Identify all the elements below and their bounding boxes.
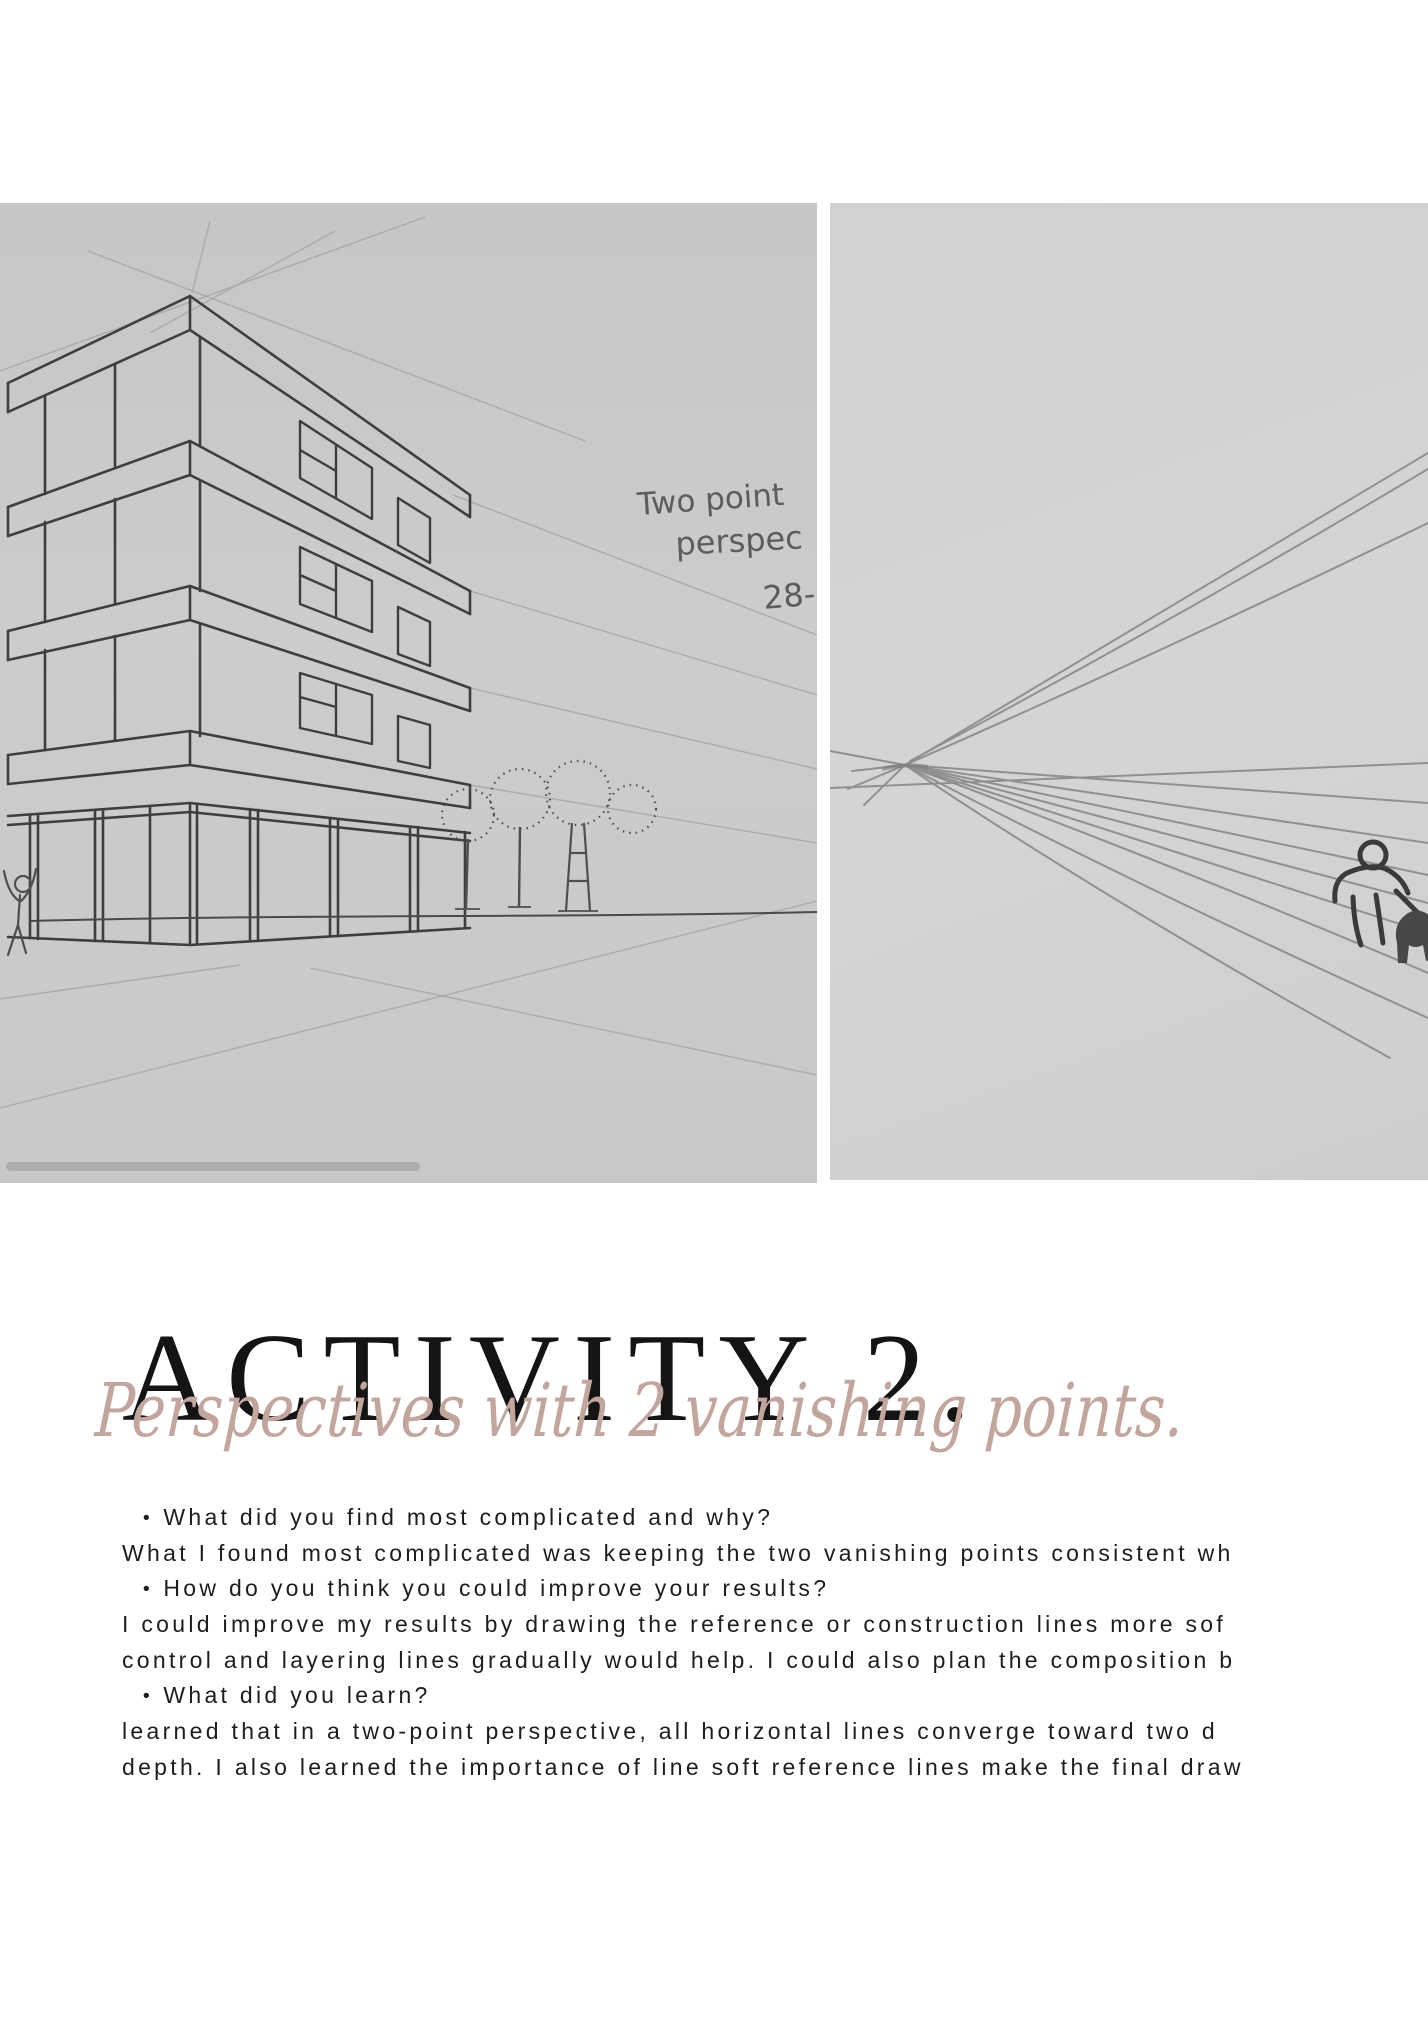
- vanishing-point-sketch: [830, 203, 1428, 1180]
- qa-section: •What did you find most complicated and …: [122, 1500, 1428, 1786]
- question-text: How do you think you could improve your …: [163, 1575, 829, 1601]
- construction-lines: [0, 217, 817, 1108]
- handwriting-line-3: 28-: [761, 575, 816, 617]
- answer-line: What I found most complicated was keepin…: [122, 1536, 1428, 1572]
- question-line: •What did you find most complicated and …: [122, 1500, 1428, 1536]
- vanishing-point-lines: [830, 453, 1428, 1058]
- building-windows: [300, 421, 430, 768]
- building-sketch: Two point perspec 28-: [0, 203, 817, 1183]
- answer-line: learned that in a two-point perspective,…: [122, 1714, 1428, 1750]
- question-text: What did you learn?: [163, 1682, 430, 1708]
- bullet-icon: •: [143, 1681, 153, 1711]
- video-progress-bar[interactable]: [6, 1162, 420, 1171]
- question-line: •How do you think you could improve your…: [122, 1571, 1428, 1607]
- question-text: What did you find most complicated and w…: [163, 1504, 773, 1530]
- script-subtitle: Perspectives with 2 vanishing points.: [93, 1368, 1186, 1454]
- horizon-line: [30, 912, 817, 921]
- left-sketch-image: Two point perspec 28-: [0, 203, 817, 1183]
- question-line: •What did you learn?: [122, 1678, 1428, 1714]
- handwriting-line-2: perspec: [674, 518, 803, 563]
- answer-line: depth. I also learned the importance of …: [122, 1750, 1428, 1786]
- handwriting-line-1: Two point: [635, 477, 785, 523]
- answer-line: I could improve my results by drawing th…: [122, 1607, 1428, 1643]
- trees: [442, 761, 656, 911]
- bullet-icon: •: [143, 1574, 153, 1604]
- building-outline: [8, 296, 470, 808]
- dog-figure: [1396, 910, 1428, 963]
- answer-line: control and layering lines gradually wou…: [122, 1643, 1428, 1679]
- right-sketch-image: [830, 203, 1428, 1180]
- bullet-icon: •: [143, 1503, 153, 1533]
- storefront: [8, 803, 470, 945]
- page: Two point perspec 28-: [0, 0, 1428, 2018]
- handwriting-note: Two point perspec 28-: [635, 477, 817, 617]
